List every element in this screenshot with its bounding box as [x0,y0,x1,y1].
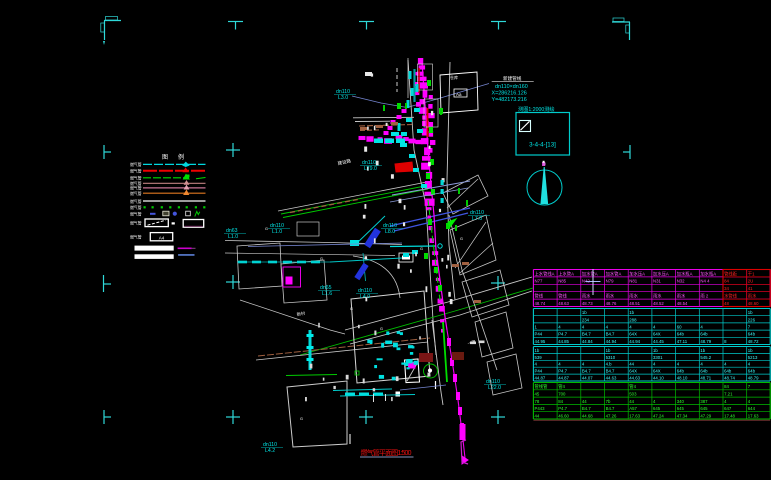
svg-text:例: 例 [178,153,184,161]
svg-text:加水管A: 加水管A [582,270,598,277]
svg-text:L1.0: L1.0 [272,229,282,235]
svg-text:G: G [460,237,463,241]
svg-text:1b: 1b [606,348,611,353]
svg-text:1b: 1b [629,310,634,315]
svg-text:X=286216.126: X=286216.126 [492,91,527,97]
svg-text:A4: A4 [159,235,165,240]
svg-text:7b: 7b [606,399,611,404]
svg-text:7.21: 7.21 [724,391,733,396]
svg-text:L22.0: L22.0 [488,385,501,391]
svg-text:48.74: 48.74 [535,301,546,306]
svg-text:燃气管: 燃气管 [130,211,142,216]
svg-text:44.07: 44.07 [582,375,593,380]
svg-text:44.45: 44.45 [653,339,664,344]
svg-text:48.52: 48.52 [653,301,664,306]
svg-text:L7.0: L7.0 [472,216,482,222]
svg-text:加水瓶A: 加水瓶A [677,270,693,277]
svg-text:44: 44 [629,362,634,367]
svg-text:P44: P44 [535,332,543,337]
svg-text:水管线: 水管线 [724,292,738,299]
svg-text:图: 图 [162,154,168,161]
svg-text:1b: 1b [653,348,658,353]
svg-text:L4.0: L4.0 [360,294,370,300]
svg-text:44.63: 44.63 [629,375,640,380]
svg-text:48.79: 48.79 [700,339,711,344]
svg-text:45: 45 [535,391,540,396]
svg-text:G: G [350,307,353,311]
svg-text:44.68: 44.68 [582,413,593,418]
svg-text:N77: N77 [535,279,543,284]
svg-text:84: 84 [724,279,729,284]
svg-text:644: 644 [748,406,756,411]
svg-text:48.51: 48.51 [629,301,640,306]
svg-text:48.63: 48.63 [558,301,569,306]
svg-text:B4.7: B4.7 [606,332,615,337]
svg-text:Aa: Aa [456,92,462,97]
svg-text:加水压A: 加水压A [629,270,645,277]
svg-text:78: 78 [535,399,540,404]
svg-text:仓库: 仓库 [450,74,458,80]
svg-text:48.71: 48.71 [700,375,711,380]
svg-text:管4: 管4 [558,383,565,390]
svg-text:647: 647 [724,406,732,411]
svg-text:P443: P443 [535,406,546,411]
svg-text:48.73: 48.73 [582,301,593,306]
svg-text:84: 84 [558,399,563,404]
svg-text:288: 288 [629,317,637,322]
svg-text:加水压A: 加水压A [653,270,669,277]
svg-text:上水管A: 上水管A [558,270,574,277]
svg-text:47.26: 47.26 [606,413,617,418]
svg-text:N32: N32 [677,279,685,284]
svg-text:539: 539 [535,355,543,360]
svg-text:燃气管: 燃气管 [130,191,142,196]
svg-text:管线管: 管线管 [535,383,549,390]
svg-text:5310: 5310 [606,355,616,360]
svg-text:燃气管: 燃气管 [130,169,142,174]
svg-text:B4.7: B4.7 [582,406,591,411]
svg-text:48.72: 48.72 [748,339,759,344]
svg-text:G: G [420,247,423,251]
svg-text:雨水: 雨水 [582,292,591,299]
svg-text:加水管A: 加水管A [606,270,622,277]
svg-text:新建管线: 新建管线 [503,75,522,82]
svg-text:44.94: 44.94 [606,339,617,344]
svg-text:雨水: 雨水 [748,292,757,299]
svg-text:管线距: 管线距 [724,270,738,277]
svg-text:48.76: 48.76 [606,301,617,306]
svg-text:64b: 64b [724,369,732,374]
svg-text:47.29: 47.29 [700,413,711,418]
svg-text:1b: 1b [748,348,753,353]
svg-text:上水管线A: 上水管线A [535,270,555,277]
svg-text:44.85: 44.85 [558,339,569,344]
svg-text:燃气管: 燃气管 [130,235,142,240]
svg-text:B4.7: B4.7 [606,369,615,374]
svg-text:2U: 2U [748,279,754,284]
svg-text:管4: 管4 [629,383,636,390]
svg-text:44: 44 [535,413,540,418]
svg-text:燃气管: 燃气管 [130,221,142,226]
svg-text:234: 234 [582,317,590,322]
svg-text:44.87: 44.87 [535,375,546,380]
svg-text:48.60: 48.60 [748,301,759,306]
svg-text:燃气管: 燃气管 [130,181,142,186]
svg-text:48: 48 [724,301,729,306]
svg-text:雨水: 雨水 [653,292,662,299]
svg-text:燃气管: 燃气管 [130,162,142,167]
svg-text:47.24: 47.24 [653,413,664,418]
svg-text:17.48: 17.48 [724,413,735,418]
svg-text:46.60: 46.60 [558,413,569,418]
svg-text:48.79: 48.79 [748,375,759,380]
svg-text:340: 340 [677,399,685,404]
svg-text:34: 34 [724,286,729,291]
svg-text:燃气管: 燃气管 [130,176,142,181]
svg-text:48.74: 48.74 [724,375,735,380]
svg-text:44.87: 44.87 [558,375,569,380]
svg-text:燃气管: 燃气管 [130,205,142,210]
svg-text:4.b: 4.b [606,362,613,367]
svg-text:G: G [265,227,268,231]
svg-text:64X: 64X [629,369,637,374]
svg-text:64b: 64b [677,332,685,337]
svg-text:G: G [300,417,303,421]
svg-text:A57: A57 [629,406,637,411]
svg-text:503: 503 [629,391,637,396]
svg-text:44: 44 [582,399,587,404]
svg-text:N85: N85 [558,279,566,284]
svg-text:dn110×dn160: dn110×dn160 [495,84,528,90]
svg-text:管线: 管线 [558,292,567,299]
svg-text:44.84: 44.84 [582,339,593,344]
svg-text:64b: 64b [748,332,756,337]
svg-text:L8.0: L8.0 [385,229,395,235]
svg-text:测图1:2000测绘: 测图1:2000测绘 [518,105,555,113]
svg-text:60: 60 [677,325,682,330]
svg-text:17.63: 17.63 [748,413,759,418]
svg-text:B4.7: B4.7 [606,406,615,411]
svg-text:64X: 64X [629,332,637,337]
svg-text:Y=482173.216: Y=482173.216 [492,97,527,103]
svg-text:44.10: 44.10 [653,375,664,380]
svg-text:1b: 1b [748,310,753,315]
svg-text:3301: 3301 [653,355,663,360]
svg-text:44.94: 44.94 [629,339,640,344]
svg-text:44.63: 44.63 [606,375,617,380]
svg-text:48.10: 48.10 [677,375,688,380]
svg-text:64X: 64X [653,369,661,374]
svg-text:64X: 64X [653,332,661,337]
svg-text:700: 700 [558,391,566,396]
svg-text:17.63: 17.63 [629,413,640,418]
svg-text:L3.0: L3.0 [338,95,348,101]
svg-text:1b: 1b [700,348,705,353]
svg-text:G: G [380,327,383,331]
svg-text:P4.7: P4.7 [558,369,567,374]
svg-text:B4.7: B4.7 [582,332,591,337]
svg-text:545.2: 545.2 [700,355,711,360]
svg-text:3-4-4-[13]: 3-4-4-[13] [529,142,556,149]
svg-text:P44: P44 [535,369,543,374]
svg-text:48.54: 48.54 [677,301,688,306]
svg-text:84: 84 [724,384,729,389]
svg-text:B4.7: B4.7 [582,369,591,374]
svg-text:雨水: 雨水 [677,292,686,299]
svg-text:L1.6: L1.6 [322,291,332,297]
svg-text:64b: 64b [700,369,708,374]
svg-text:44: 44 [629,399,634,404]
svg-text:226: 226 [748,317,756,322]
svg-text:燃气管: 燃气管 [130,199,142,204]
svg-text:雨水: 雨水 [629,292,638,299]
svg-text:5213: 5213 [748,355,758,360]
svg-text:1b: 1b [535,348,540,353]
svg-text:1b: 1b [582,310,587,315]
svg-text:燃气管: 燃气管 [130,186,142,191]
svg-text:L4.2: L4.2 [265,448,275,454]
svg-text:P4.7: P4.7 [558,332,567,337]
svg-text:645: 645 [653,406,661,411]
svg-text:645: 645 [700,406,708,411]
svg-text:64b: 64b [748,369,756,374]
svg-text:N79: N79 [606,279,614,284]
svg-text:64b: 64b [700,332,708,337]
svg-text:加水瓶A: 加水瓶A [700,270,716,277]
svg-text:P4.7: P4.7 [558,406,567,411]
svg-text:N4 4: N4 4 [700,279,710,284]
svg-text:G: G [320,257,323,261]
svg-text:64b: 64b [677,369,685,374]
svg-text:LT9.0: LT9.0 [364,166,377,172]
svg-text:L1.0: L1.0 [228,234,238,240]
svg-text:雨水: 雨水 [606,292,615,299]
svg-text:47.34: 47.34 [677,413,688,418]
svg-text:645: 645 [677,406,685,411]
svg-text:387: 387 [700,399,708,404]
svg-text:N81: N81 [629,279,637,284]
svg-text:管线: 管线 [535,292,544,299]
svg-text:41: 41 [748,286,753,291]
svg-text:燃气管平面图1:500: 燃气管平面图1:500 [361,448,412,457]
svg-text:47.11: 47.11 [677,339,688,344]
svg-text:N31: N31 [653,279,661,284]
svg-text:44.95: 44.95 [535,339,546,344]
